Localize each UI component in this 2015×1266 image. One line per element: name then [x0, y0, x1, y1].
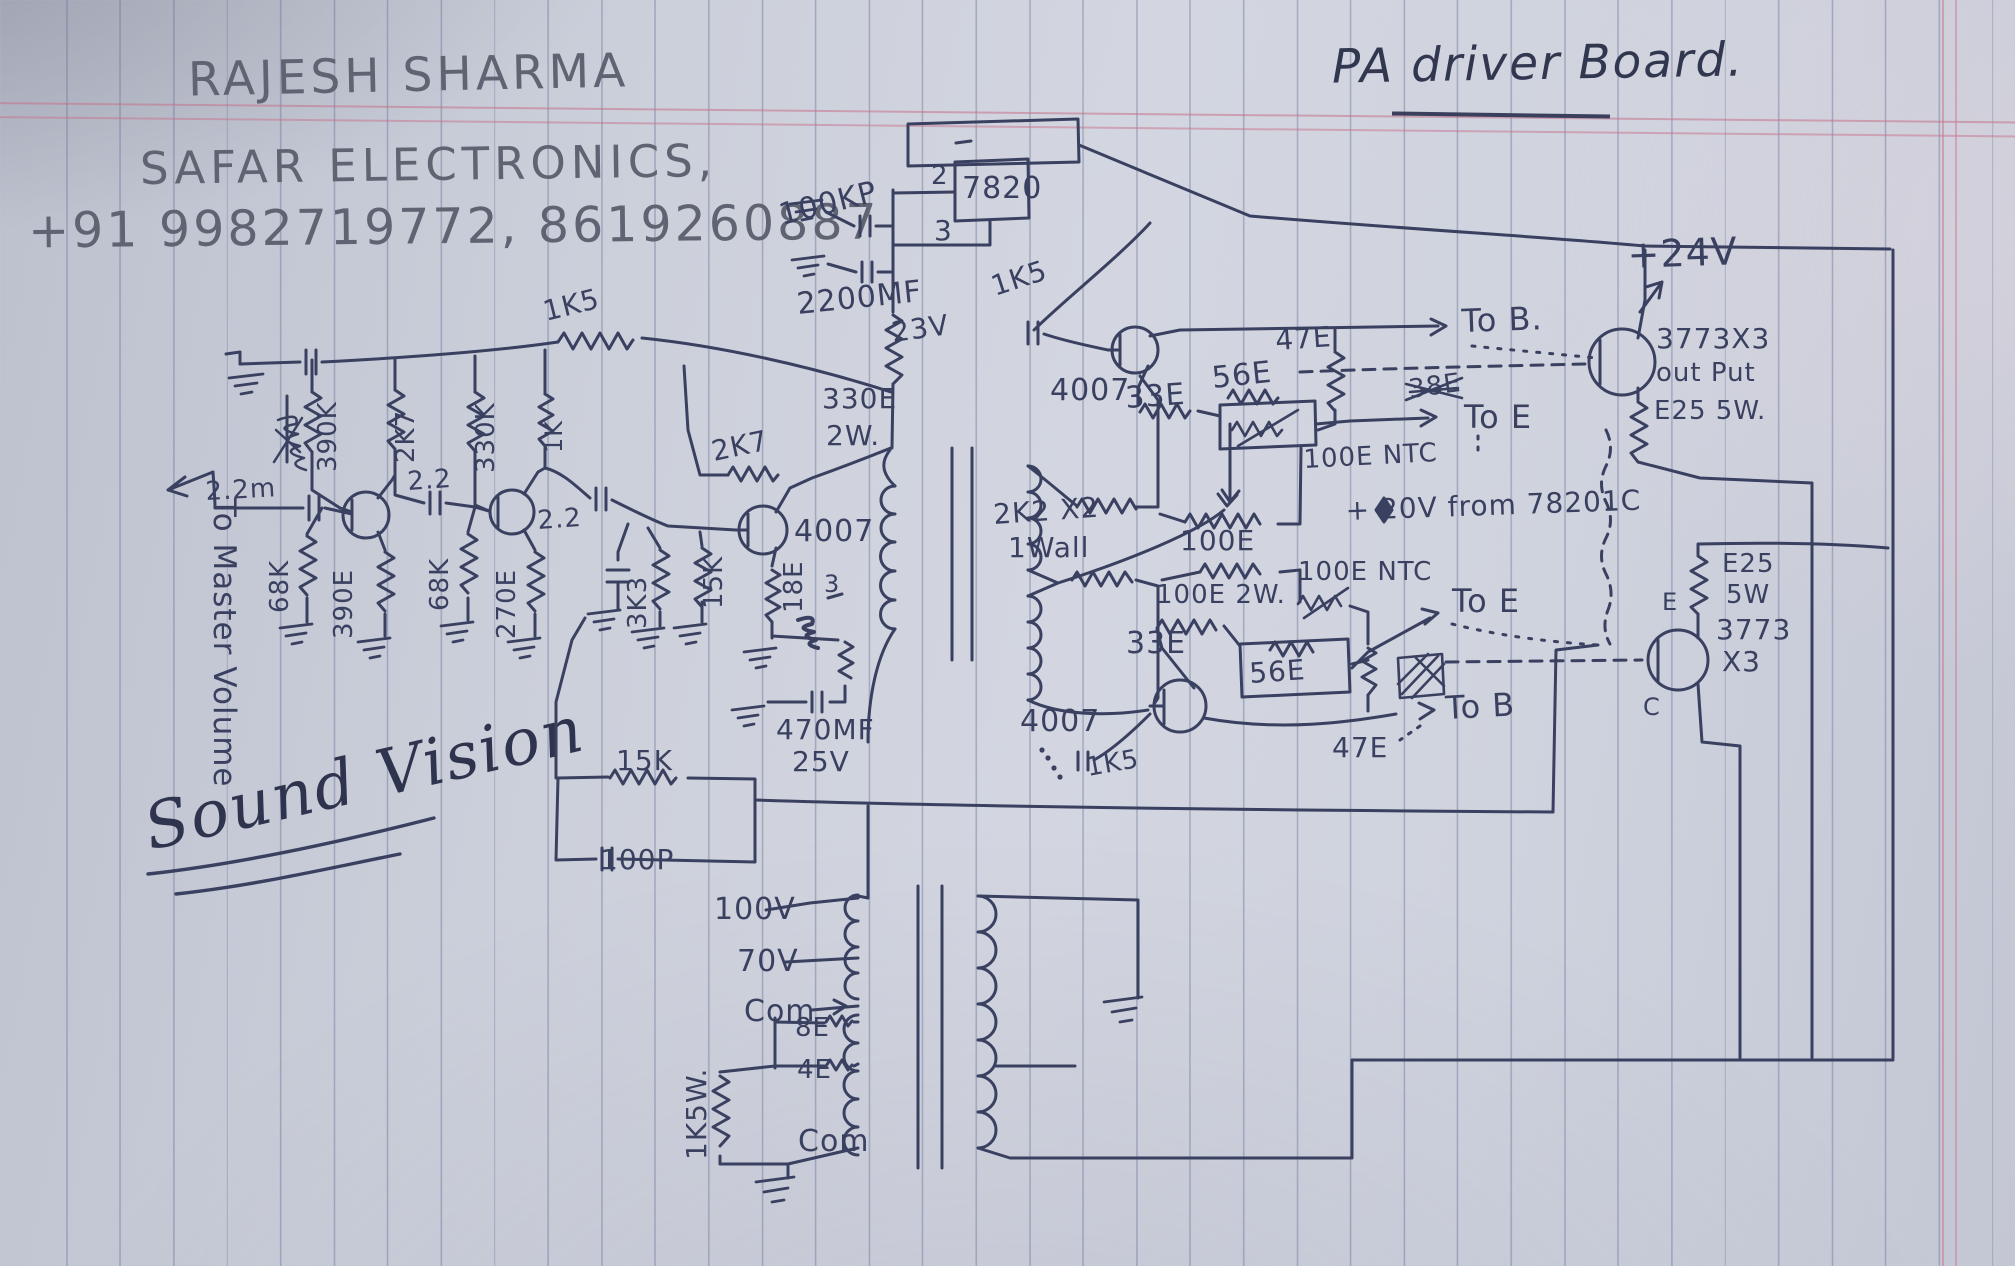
- label-toe-b: To E: [1451, 582, 1520, 620]
- label-e25-a: E25 5W.: [1654, 396, 1766, 426]
- label-pin2: 2: [931, 161, 949, 191]
- label-1k: 1K: [540, 420, 568, 453]
- label-1k5-c: 1K5: [1084, 744, 1142, 783]
- label-4007-b: 4007: [794, 514, 874, 549]
- label-68k-b: 68K: [425, 558, 455, 611]
- label-1k5-a: 1K5: [987, 254, 1051, 303]
- label-pin-e: E: [1662, 588, 1678, 616]
- label-100e-a: 100E: [1180, 524, 1255, 557]
- label-pin-c: C: [1643, 693, 1661, 721]
- label-1k5-b: 1K5: [540, 282, 603, 328]
- label-pin3: 3: [934, 214, 953, 247]
- label-8e: 8E: [795, 1013, 830, 1043]
- label-38e-crossed: 38E: [1407, 368, 1463, 405]
- dots-near-1k5: [1039, 747, 1062, 779]
- label-2k7-b: 2K7: [709, 424, 772, 468]
- signature-flourish: [148, 818, 434, 894]
- schematic-canvas: 100KP2200MF23V2782031K5400733E56E47ETo B…: [0, 0, 2015, 1266]
- label-4007-a: 4007: [1050, 373, 1130, 408]
- label-cap22-a: 2.2: [406, 464, 452, 497]
- scribble-blob: [798, 618, 818, 648]
- label-100e-b: 100E 2W.: [1156, 580, 1286, 610]
- label-cap22-b: 2.2: [536, 503, 582, 536]
- label-4e: 4E: [797, 1055, 832, 1085]
- label-3k3: 3K3: [623, 576, 653, 629]
- label-3773-a: 3773X3: [1656, 322, 1770, 355]
- label-390k: 390K: [313, 401, 343, 472]
- label-num3: 3: [824, 570, 840, 598]
- label-output: out Put: [1656, 358, 1756, 388]
- label-33e-b: 33E: [1126, 626, 1186, 661]
- label-100p: 100P: [600, 843, 674, 876]
- label-toe-a: To E: [1463, 398, 1532, 436]
- label-390e: 390E: [329, 569, 359, 639]
- label-25v: 25V: [792, 745, 850, 778]
- label-com-b: Com: [798, 1124, 870, 1159]
- label-1k5w: 1K5W.: [680, 1068, 713, 1160]
- label-master-volume: To Master Volume: [206, 497, 242, 788]
- label-70v: 70V: [737, 944, 799, 979]
- crossed-out-marks: [1398, 378, 1462, 698]
- label-270e: 270E: [492, 569, 522, 639]
- label-ntc-a: 100E NTC: [1303, 438, 1439, 475]
- label-4007-c: 4007: [1020, 704, 1100, 739]
- label-470mf: 470MF: [776, 713, 875, 746]
- label-tob-b: To B: [1443, 685, 1516, 727]
- label-20v-line: + 20V from 78201C: [1345, 484, 1642, 527]
- label-15k-b: 15K: [616, 744, 673, 777]
- label-23v: 23V: [889, 308, 951, 349]
- label-100kp: 100KP: [775, 175, 881, 233]
- label-47e-b: 47E: [1332, 731, 1388, 764]
- label-1wall: 1Wall: [1008, 531, 1089, 564]
- label-330e: 330E: [822, 382, 897, 415]
- label-15k-a: 15K: [699, 556, 729, 609]
- label-e25-b1: E25: [1722, 549, 1775, 579]
- label-ntc-b: 100E NTC: [1298, 557, 1432, 587]
- label-68k-a: 68K: [265, 560, 295, 613]
- label-33e-a: 33E: [1124, 377, 1186, 416]
- label-e25-b2: 5W: [1726, 580, 1770, 610]
- label-2k2x2: 2K2 X2: [992, 491, 1100, 531]
- label-2w: 2W.: [826, 419, 880, 452]
- scribble-crossed-resistor: [274, 417, 306, 470]
- label-tob-a: To B.: [1460, 299, 1543, 340]
- label-330k: 330K: [471, 402, 501, 473]
- label-3773-b2: X3: [1722, 645, 1761, 678]
- ground-symbols: [229, 200, 1142, 1202]
- label-24v: +24V: [1627, 229, 1739, 277]
- label-56e-a: 56E: [1210, 355, 1273, 396]
- label-100v: 100V: [714, 892, 796, 927]
- label-56e-b: 56E: [1248, 653, 1306, 690]
- label-18e: 18E: [779, 560, 809, 613]
- label-2k7-a: 2K7: [391, 410, 421, 463]
- notebook-page-photo: { "page": { "author": "RAJESH SHARMA", "…: [0, 0, 2015, 1266]
- label-ic7820: 7820: [962, 171, 1042, 206]
- label-47e-a: 47E: [1274, 320, 1332, 357]
- label-3773-b1: 3773: [1716, 613, 1791, 646]
